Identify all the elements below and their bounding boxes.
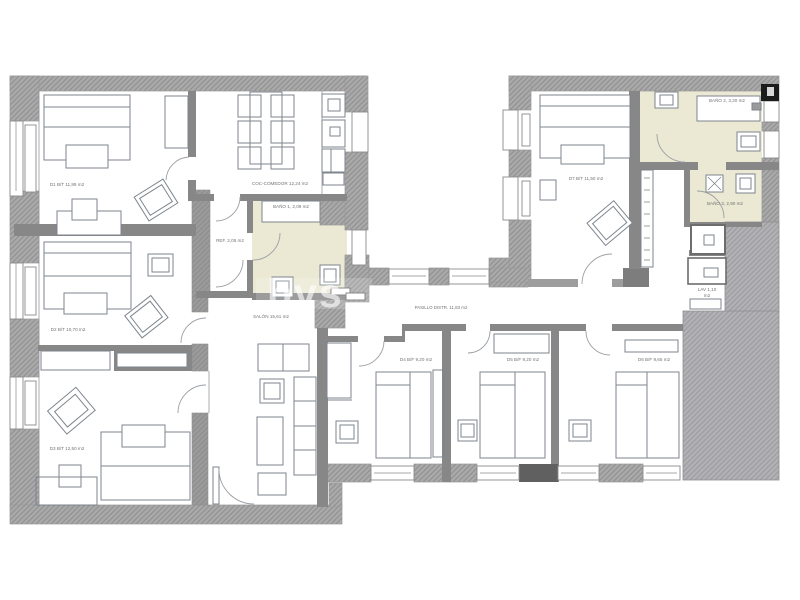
svg-text:D7 B/T 11,50 m2: D7 B/T 11,50 m2 [569,176,604,181]
svg-text:BAÑO 2, 3,20 m2: BAÑO 2, 3,20 m2 [709,97,745,103]
svg-text:D5 B/F 9,20 m2: D5 B/F 9,20 m2 [507,357,540,362]
svg-text:PASILLO DISTR. 11,83 m2: PASILLO DISTR. 11,83 m2 [415,305,468,310]
svg-text:D3 B/T 12,50 m2: D3 B/T 12,50 m2 [50,446,85,451]
svg-text:COC-COMEDOR 12,24 m2: COC-COMEDOR 12,24 m2 [252,181,309,186]
svg-text:BAÑO 1, 2,09 m2: BAÑO 1, 2,09 m2 [273,203,309,209]
svg-text:D4 B/F 9,20 m2: D4 B/F 9,20 m2 [400,357,433,362]
svg-text:D2 B/T 10,70 m2: D2 B/T 10,70 m2 [51,327,86,332]
svg-text:LAV 1,10: LAV 1,10 [698,287,717,292]
svg-text:D6 B/F 9,65 m2: D6 B/F 9,65 m2 [638,357,671,362]
svg-text:bvs: bvs [267,270,344,316]
svg-text:m2: m2 [704,293,711,298]
svg-text:REF. 2,05 m2: REF. 2,05 m2 [216,238,244,243]
svg-text:D1 B/T 11,89 m2: D1 B/T 11,89 m2 [50,182,85,187]
svg-text:BAÑO 3, 2,90 m2: BAÑO 3, 2,90 m2 [707,200,743,206]
